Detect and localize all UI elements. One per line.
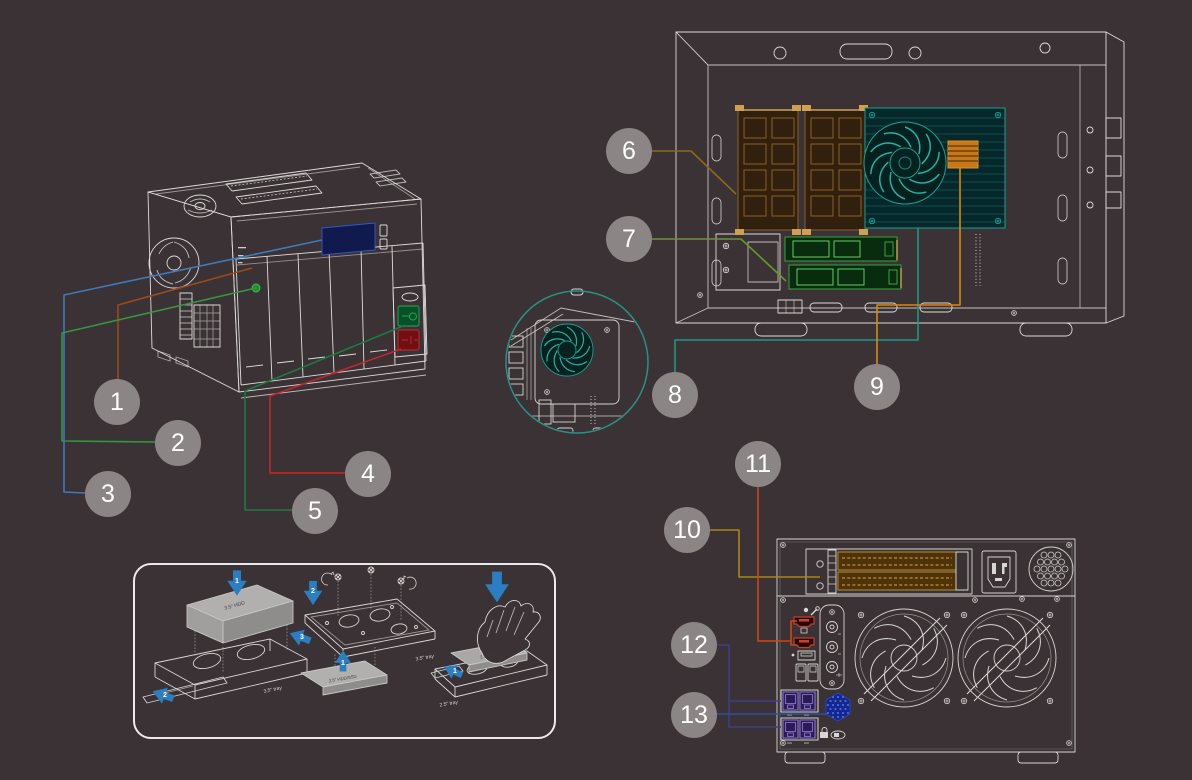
nas-rear-view	[770, 525, 1190, 775]
svg-text:3.5" tray: 3.5" tray	[415, 653, 435, 662]
callout-circle-4: 4	[345, 451, 391, 497]
nas-front-view	[130, 155, 450, 415]
svg-text:1: 1	[453, 668, 457, 675]
front-button-panel	[393, 285, 427, 357]
hardware-diagram-canvas: 1 3 2 2 1 1 3.5" HDD 3.5" tray 2.5" HDD/…	[0, 0, 1192, 780]
hdmi-ports	[794, 617, 814, 648]
callout-circle-8: 8	[652, 372, 698, 418]
m2-ssd-slots	[785, 237, 901, 289]
svg-text:1: 1	[235, 578, 239, 585]
svg-text:2: 2	[163, 692, 167, 699]
inset-cpu-fan	[541, 324, 593, 376]
rear-fan-right	[958, 609, 1056, 707]
ethernet-ports	[781, 690, 818, 743]
callout-circle-13: 13	[671, 692, 717, 738]
callout-circle-5: 5	[292, 488, 338, 534]
audio-jacks	[820, 605, 844, 689]
rear-fan-left	[855, 609, 953, 707]
cpu-cooler	[864, 108, 1005, 228]
psu-vent	[1029, 547, 1073, 591]
svg-text:3: 3	[300, 634, 304, 641]
power-inlet	[982, 551, 1016, 593]
fan-detail-inset	[503, 288, 653, 438]
wrench-icon	[811, 607, 819, 615]
top-cpu-fan-glimpse	[184, 195, 216, 217]
lcd-panel	[322, 223, 375, 255]
svg-text:2: 2	[311, 588, 315, 595]
tray-install-panel: 1 3 2 2 1 1 3.5" HDD 3.5" tray 2.5" HDD/…	[133, 563, 556, 739]
ssd25-into-tray35	[301, 567, 435, 695]
lock-icons	[820, 728, 845, 740]
rear-case-lineart	[777, 539, 1075, 763]
hdd35-into-tray	[143, 585, 307, 703]
usb-2-port	[798, 651, 815, 660]
tray-install-illustrations: 1 3 2 2 1 1 3.5" HDD 3.5" tray 2.5" HDD/…	[135, 565, 554, 737]
side-fan-glimpse	[149, 238, 199, 288]
callout-circle-3: 3	[85, 471, 131, 517]
ssd25-into-tray25	[431, 600, 547, 697]
speaker	[826, 693, 850, 721]
nas-side-open-view	[660, 20, 1140, 340]
callout-circle-6: 6	[606, 128, 652, 174]
callout-circle-7: 7	[606, 216, 652, 262]
screw-icons	[322, 567, 417, 589]
ram-modules	[735, 105, 868, 235]
callout-circle-12: 12	[671, 622, 717, 668]
drive-bays	[236, 243, 426, 385]
front-led-indicators	[238, 247, 246, 263]
front-case-lineart	[148, 163, 427, 398]
usb-one-touch-copy	[252, 284, 260, 292]
svg-text:3.5" tray: 3.5" tray	[263, 685, 283, 695]
status-dot-icon	[804, 608, 808, 612]
svg-text:2.5" tray: 2.5" tray	[439, 699, 459, 708]
usb-3-ports	[796, 664, 818, 681]
callout-circle-2: 2	[155, 420, 201, 466]
cpu-fan	[864, 122, 946, 204]
callout-circle-11: 11	[735, 441, 781, 487]
cpu-heatsink	[948, 141, 978, 168]
svg-text:1: 1	[341, 660, 345, 667]
callout-circle-10: 10	[664, 507, 710, 553]
callout-circle-1: 1	[94, 379, 140, 425]
pcie-expansion-slots	[806, 549, 972, 594]
callout-circle-9: 9	[854, 364, 900, 410]
